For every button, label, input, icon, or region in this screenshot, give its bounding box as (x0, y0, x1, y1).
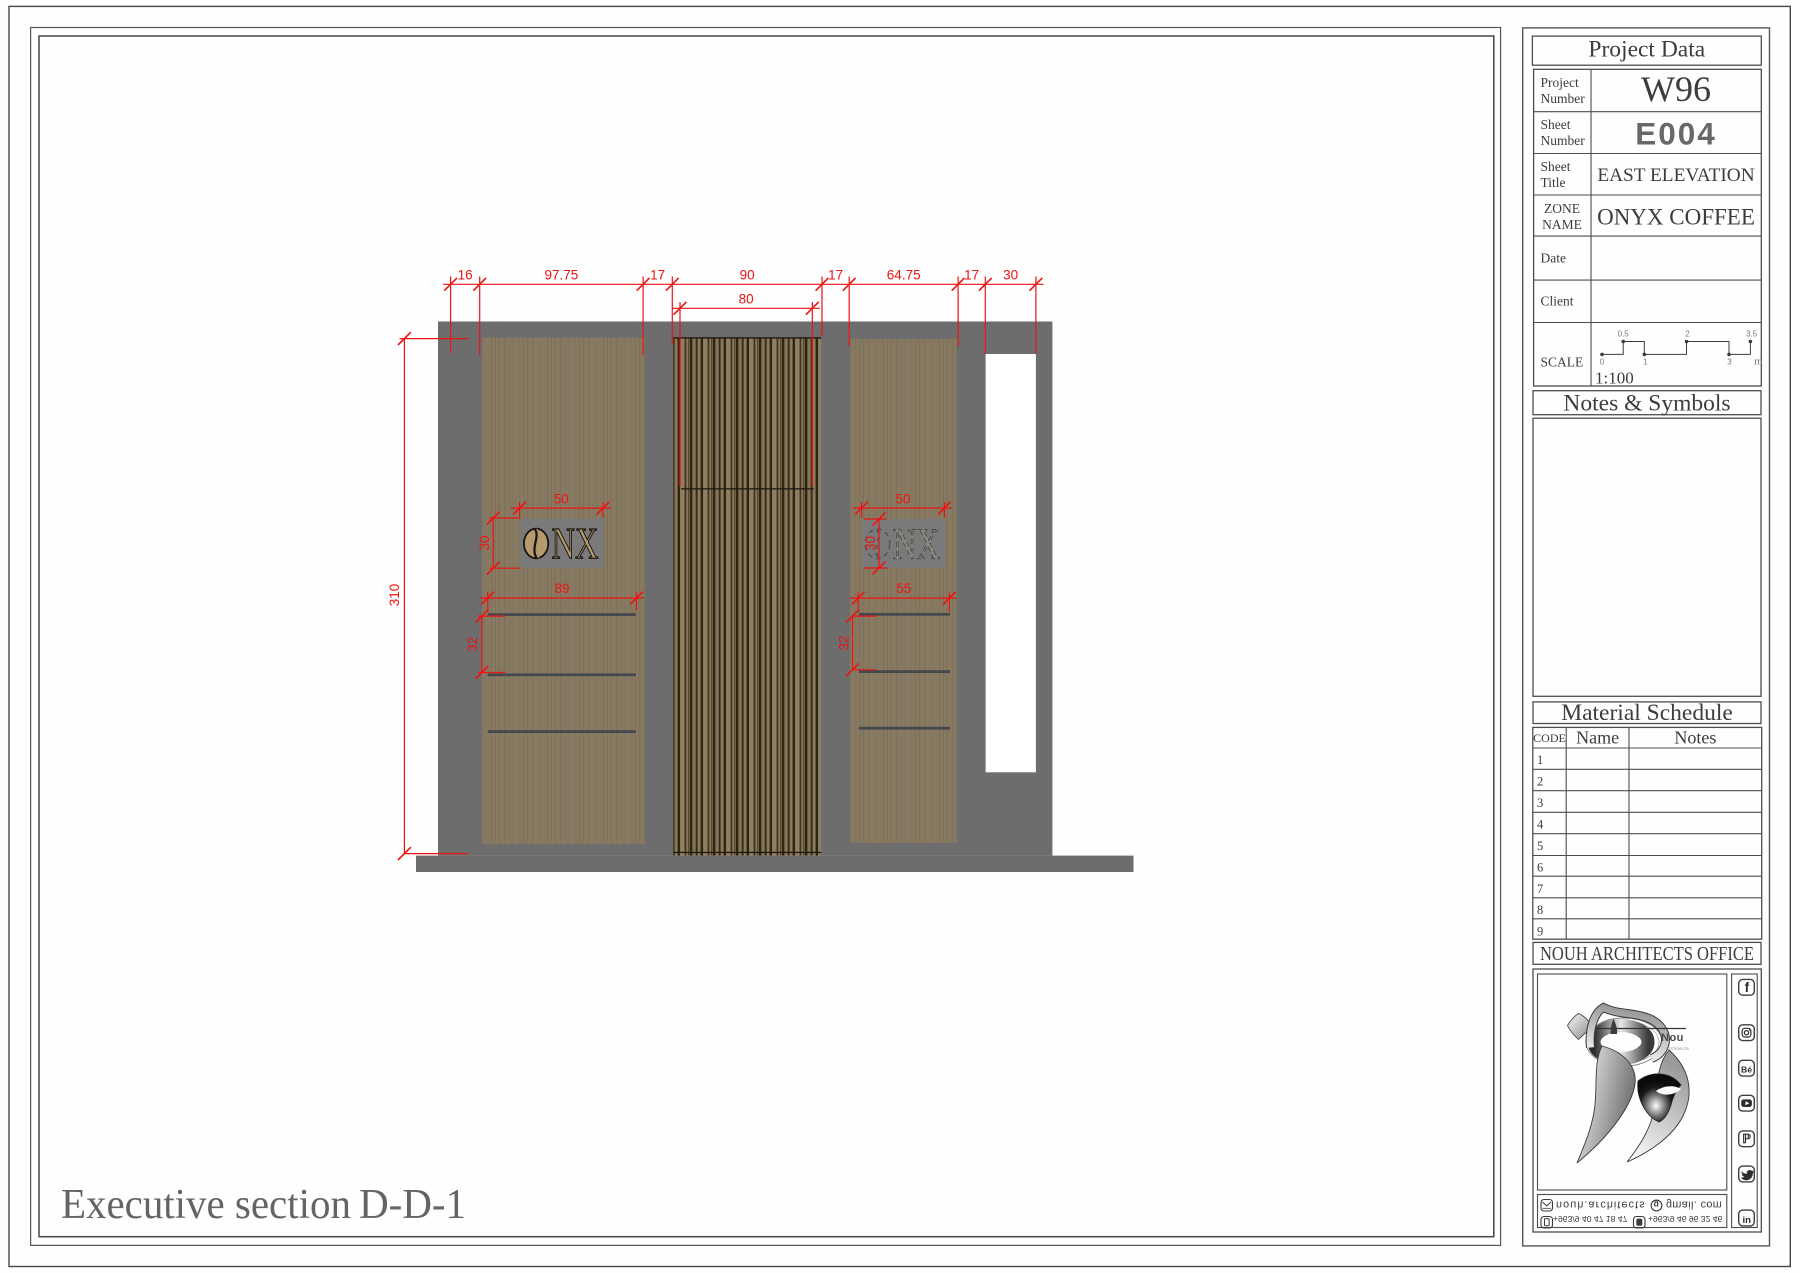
svg-text:SCALE: SCALE (1541, 355, 1584, 370)
svg-text:NX: NX (552, 520, 599, 568)
svg-text:3: 3 (1537, 796, 1543, 810)
svg-text:32: 32 (465, 637, 480, 652)
svg-text:6: 6 (1537, 861, 1543, 875)
svg-text:3: 3 (1727, 358, 1732, 367)
svg-text:17: 17 (828, 268, 843, 283)
svg-text:m: m (1754, 356, 1763, 368)
svg-text:CODE: CODE (1533, 731, 1566, 745)
svg-text:Project: Project (1541, 75, 1579, 90)
svg-text:2: 2 (1537, 775, 1543, 789)
svg-text:7: 7 (1537, 882, 1543, 896)
svg-text:30: 30 (1003, 268, 1018, 283)
svg-text:17: 17 (964, 268, 979, 283)
svg-text:0: 0 (1600, 358, 1605, 367)
svg-text:NX: NX (893, 521, 940, 569)
svg-text:Title: Title (1541, 175, 1566, 190)
svg-text:Notes: Notes (1674, 728, 1716, 748)
svg-text:0.5: 0.5 (1618, 330, 1630, 339)
svg-text:16: 16 (458, 268, 473, 283)
svg-text:Client: Client (1541, 294, 1574, 309)
svg-text:architects: architects (1666, 1046, 1690, 1051)
svg-text:2: 2 (1685, 330, 1690, 339)
svg-text:NAME: NAME (1542, 217, 1582, 232)
svg-text:30: 30 (477, 535, 492, 550)
svg-text:1: 1 (1643, 358, 1648, 367)
svg-text:Number: Number (1541, 133, 1586, 148)
svg-text:9: 9 (1537, 925, 1543, 939)
svg-text:+963/9 40 47 18 47: +963/9 40 47 18 47 (1553, 1214, 1628, 1224)
svg-text:in: in (1742, 1215, 1751, 1226)
svg-text:90: 90 (740, 268, 755, 283)
svg-text:50: 50 (554, 491, 569, 506)
svg-text:Notes & Symbols: Notes & Symbols (1563, 391, 1730, 417)
svg-text:Executive section D-D-1: Executive section D-D-1 (61, 1182, 466, 1228)
svg-text:97.75: 97.75 (545, 268, 579, 283)
svg-text:89: 89 (554, 581, 569, 596)
svg-text:EAST ELEVATION: EAST ELEVATION (1597, 165, 1754, 186)
svg-text:5: 5 (1537, 839, 1543, 853)
svg-text:55: 55 (896, 581, 911, 596)
svg-text:NOUH ARCHITECTS OFFICE: NOUH ARCHITECTS OFFICE (1540, 944, 1754, 965)
svg-text:ℙ: ℙ (1742, 1132, 1751, 1146)
svg-text:30: 30 (863, 536, 878, 551)
svg-text:17: 17 (650, 268, 665, 283)
svg-text:Date: Date (1541, 251, 1566, 266)
svg-text:80: 80 (739, 292, 754, 307)
svg-text:310: 310 (387, 584, 402, 607)
svg-text:nouh.architects: nouh.architects (1556, 1199, 1646, 1211)
svg-text:g: g (1654, 1200, 1659, 1210)
svg-text:Sheet: Sheet (1541, 159, 1571, 174)
svg-text:Number: Number (1541, 91, 1586, 106)
svg-text:3.5: 3.5 (1746, 330, 1758, 339)
svg-text:gmail. com: gmail. com (1666, 1199, 1722, 1211)
svg-text:Bé: Bé (1741, 1064, 1752, 1074)
svg-text:4: 4 (1537, 818, 1544, 832)
svg-text:ZONE: ZONE (1544, 201, 1580, 216)
svg-text:ONYX COFFEE: ONYX COFFEE (1597, 205, 1755, 230)
svg-text:f: f (1745, 980, 1750, 995)
svg-text:50: 50 (895, 491, 910, 506)
svg-text:W96: W96 (1641, 69, 1711, 109)
svg-text:Name: Name (1576, 728, 1619, 748)
svg-text:8: 8 (1537, 903, 1543, 917)
svg-text:Sheet: Sheet (1541, 117, 1571, 132)
svg-text:+963/9 46 96 32 46: +963/9 46 96 32 46 (1648, 1214, 1723, 1224)
svg-text:1: 1 (1537, 753, 1543, 767)
svg-text:E004: E004 (1635, 116, 1717, 152)
svg-text:Material Schedule: Material Schedule (1561, 700, 1733, 726)
svg-text:Project Data: Project Data (1588, 37, 1705, 63)
svg-text:64.75: 64.75 (887, 268, 921, 283)
svg-text:32: 32 (837, 635, 852, 650)
svg-text:1:100: 1:100 (1595, 369, 1634, 388)
svg-text:Nou: Nou (1661, 1032, 1684, 1044)
